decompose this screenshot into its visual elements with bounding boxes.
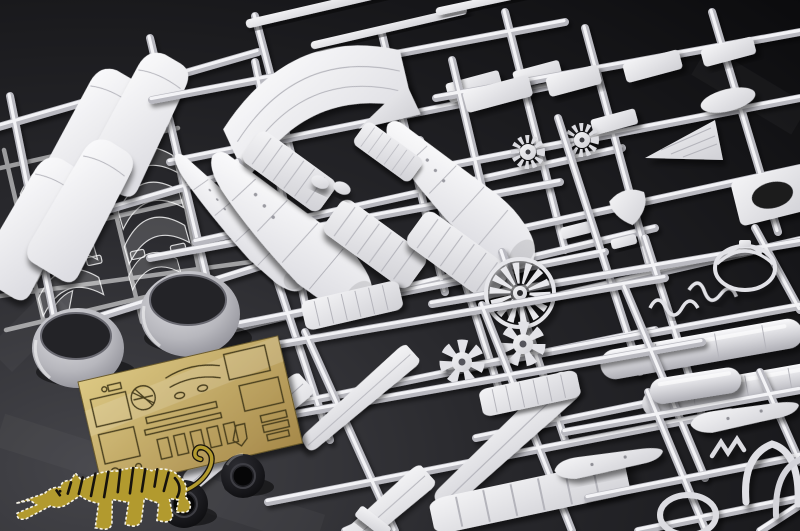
cooling-fan-part (486, 259, 554, 327)
photo-canvas (0, 0, 800, 531)
kit-contents-photo (0, 0, 800, 531)
